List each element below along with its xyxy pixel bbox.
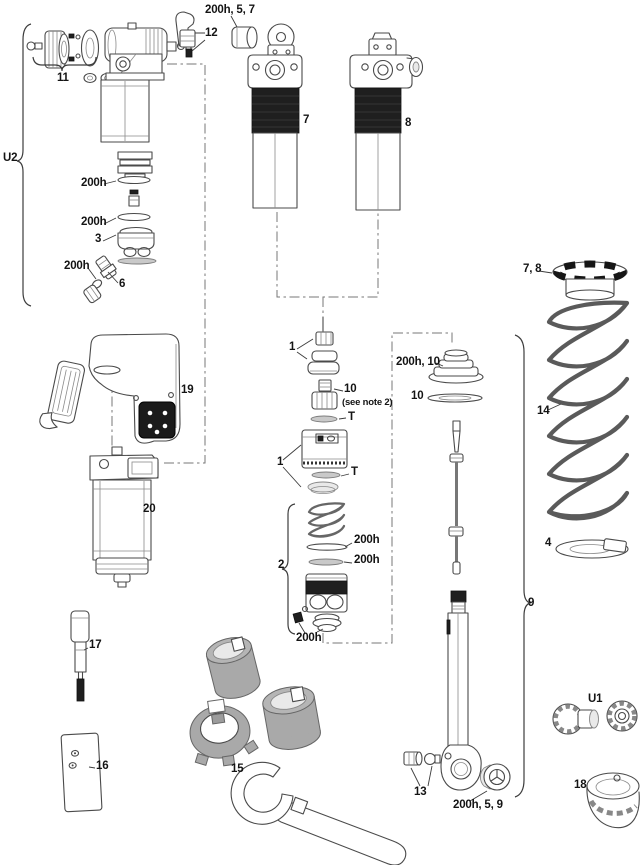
label-knob-cup: 18: [574, 779, 586, 791]
seal-ring-lower: [118, 214, 150, 221]
label-seal-lower: 200h: [81, 216, 106, 228]
damper-shaft-assembly: [441, 591, 481, 790]
label-spring-group: 2: [278, 559, 284, 571]
label-fitting-note: (see note 2): [342, 397, 392, 408]
lockring-notch: [208, 699, 226, 713]
sleeve-notch: [231, 637, 245, 651]
bottom-cap: [313, 614, 341, 632]
u1-knob-left: [553, 704, 599, 734]
label-t-ring-lower: T: [351, 466, 358, 478]
tool-sleeve-a: [204, 633, 263, 702]
tool-sleeve-b: [261, 683, 323, 753]
spanner-wrench-15: [231, 762, 406, 865]
upper-bushing: [232, 27, 257, 48]
glide-ring: [308, 482, 338, 494]
spring-seal-ring: [309, 559, 343, 565]
ribbed-cap: [118, 152, 152, 177]
controller-19: [89, 334, 180, 443]
spring-washer: [307, 544, 347, 550]
label-shock-right: 8: [405, 117, 411, 129]
shaft-fitting-10: [312, 380, 337, 409]
label-damper-group: 9: [528, 597, 534, 609]
seal-head-group-1: [308, 317, 339, 374]
label-bumper-washer: 10: [411, 390, 423, 402]
lever-screw-icon: [186, 49, 192, 57]
label-air-valve: 6: [119, 278, 125, 290]
label-bumper: 200h, 10: [396, 356, 440, 368]
label-t-ring-upper: T: [348, 411, 355, 423]
label-air-valve-seal: 200h: [64, 260, 89, 272]
battery: [38, 359, 85, 434]
piston-head-3: [118, 228, 156, 265]
label-seal-head-group: 1: [289, 341, 295, 353]
shock-body-7: [248, 24, 302, 208]
air-can-knurl: [252, 88, 299, 133]
label-reservoir: 20: [143, 503, 155, 515]
label-u1-knobs: U1: [588, 693, 602, 705]
label-shaft-nuts: 13: [414, 786, 426, 798]
negative-spring-coil: [309, 503, 344, 536]
label-spring-seal: 200h: [354, 554, 379, 566]
group-9-brace: [515, 335, 530, 797]
air-piston-group-1: [302, 430, 347, 468]
tool-lockring: [186, 695, 260, 769]
label-spring-washer: 200h: [354, 534, 379, 546]
exploded-parts-diagram: 200h, 5, 7 12 11 U2 7 8 200h 200h 3 200h…: [0, 0, 640, 865]
thin-spacer-ring: [118, 258, 156, 264]
label-shaft-fitting: 10: [344, 383, 356, 395]
preload-collar-7-8: [553, 262, 627, 300]
label-lower-bushing: 200h, 5, 9: [453, 799, 503, 811]
eyelet-icon: [374, 61, 393, 80]
t-ring-lower: [312, 472, 340, 478]
t-ring-upper: [311, 416, 337, 422]
knob-cup-18: [587, 773, 639, 828]
retainer-clip-icon: [293, 612, 303, 623]
label-seal-upper: 200h: [81, 177, 106, 189]
shaft-clamp-tool-17: [71, 611, 89, 701]
label-preload-collar: 7, 8: [523, 263, 541, 275]
seal-ring-upper: [118, 177, 150, 184]
label-u2-group: U2: [3, 152, 17, 164]
eyelet-icon: [266, 61, 285, 80]
label-bottom-seal-group: 200h: [296, 632, 321, 644]
shock-body-8: [350, 33, 423, 210]
lower-bushing: [480, 764, 510, 790]
label-coil-spring: 14: [537, 405, 549, 417]
label-air-piston-group: 1: [277, 456, 283, 468]
label-shock-left: 7: [303, 114, 309, 126]
sleeve-notch: [291, 687, 305, 702]
shaft-nuts-13: [404, 752, 440, 765]
label-mount-block: 16: [96, 760, 108, 772]
rebound-needle-shaft: [449, 421, 463, 574]
label-knob-group: 11: [57, 72, 69, 84]
small-fittings: [129, 190, 139, 206]
bumper-washer: [428, 394, 482, 402]
mount-block-16: [61, 733, 102, 812]
diagram-canvas: [0, 0, 640, 865]
label-piston-head: 3: [95, 233, 101, 245]
label-tool-kit: 15: [231, 763, 243, 775]
air-can-knurl: [355, 88, 401, 133]
knurled-dial-icon: [45, 31, 69, 68]
motor-damper-assembly: [101, 23, 191, 142]
negative-spring-group-2: [282, 503, 347, 634]
negative-piston: [306, 574, 347, 612]
coil-spring-14: [549, 303, 627, 519]
screw-icon: [27, 42, 42, 50]
reservoir-20: [90, 447, 158, 587]
label-spring-retainer: 4: [545, 537, 551, 549]
u2-brace: [17, 24, 31, 306]
remote-lever-12: [176, 12, 195, 57]
label-shaft-clamp-tool: 17: [89, 639, 101, 651]
adjuster-knob-group-11: [27, 30, 113, 83]
shaft-nub-icon: [167, 42, 176, 51]
u1-knob-right: [607, 701, 637, 731]
label-upper-bushing: 200h, 5, 7: [205, 4, 255, 16]
grommet-icon: [84, 74, 96, 83]
label-controller: 19: [181, 384, 193, 396]
spring-retainer-4: [556, 539, 628, 558]
label-remote-lever: 12: [205, 27, 217, 39]
